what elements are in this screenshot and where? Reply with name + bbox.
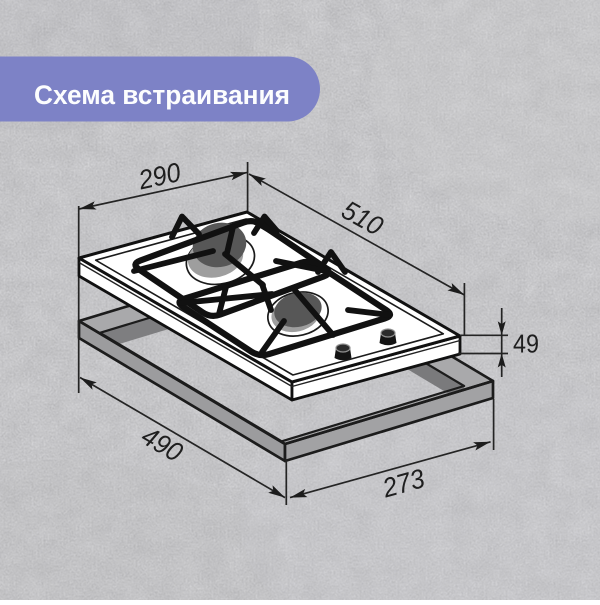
svg-text:Схема встраивания: Схема встраивания — [34, 80, 290, 110]
svg-text:49: 49 — [513, 329, 539, 359]
